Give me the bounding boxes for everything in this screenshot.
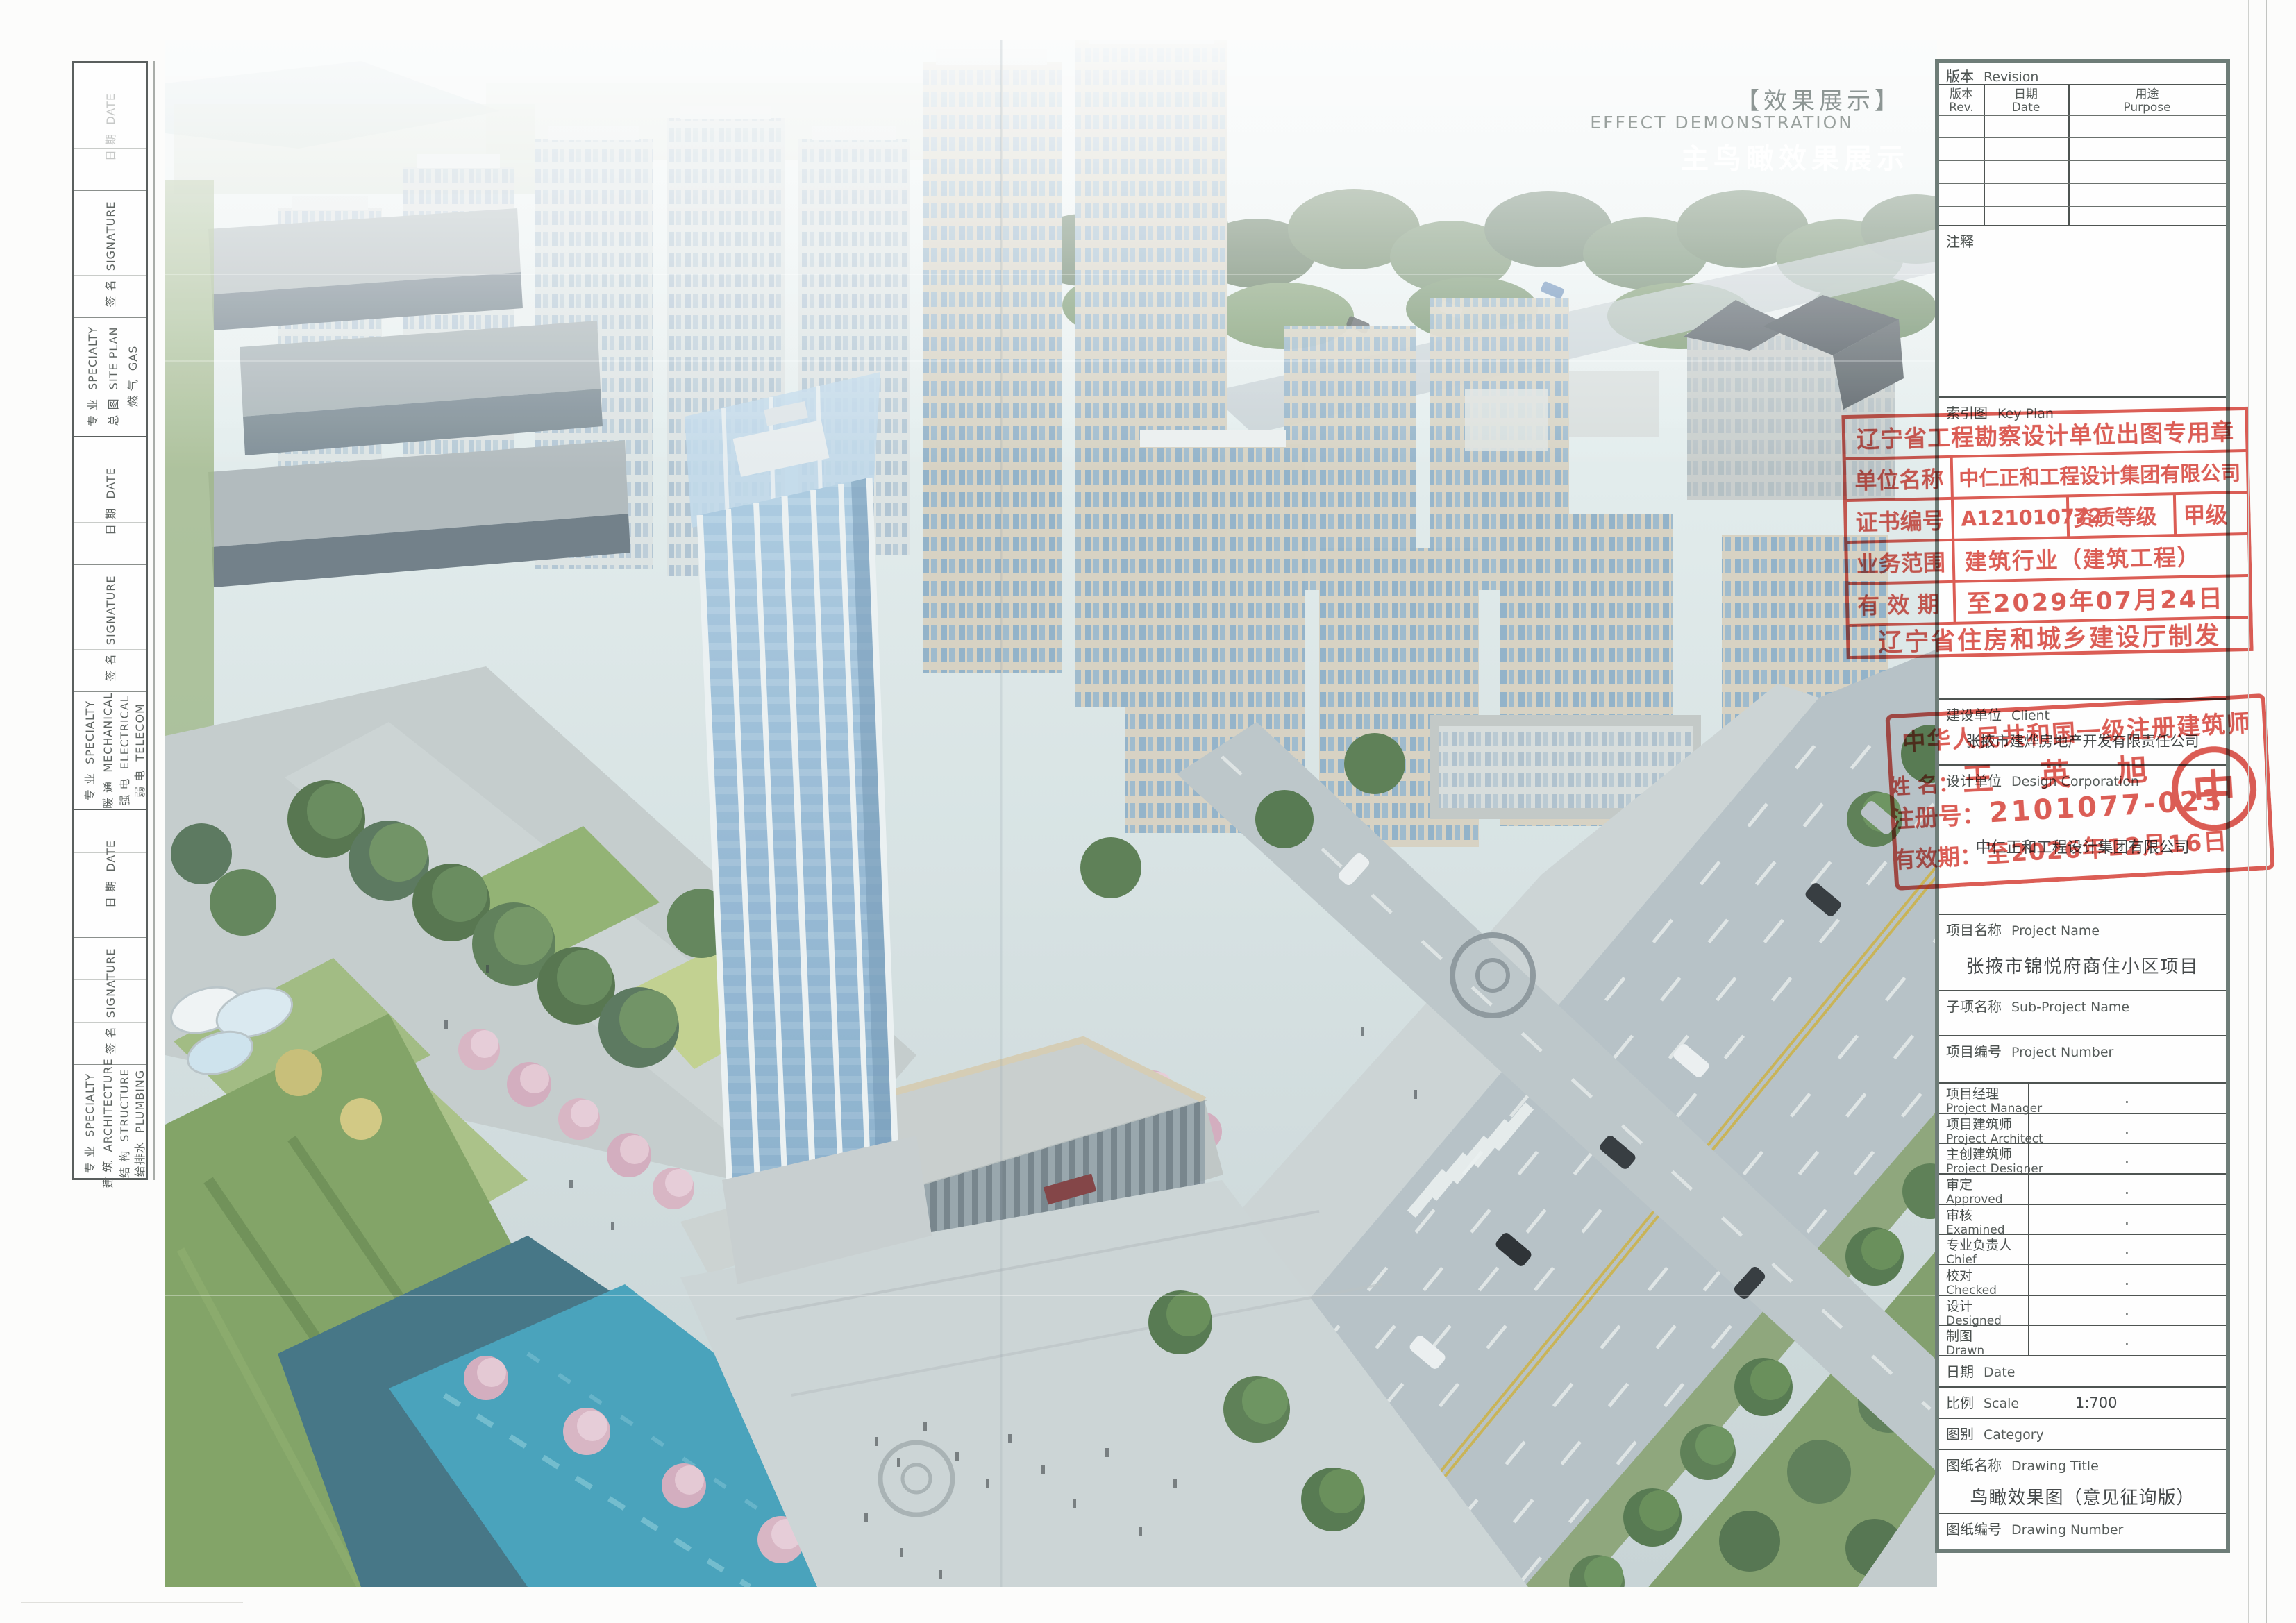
- drawing-sheet: 【效果展示】 EFFECT DEMONSTRATION 主鸟瞰效果展示 日 期 …: [0, 0, 2296, 1623]
- scan-shadow-line: [21, 1602, 243, 1603]
- personnel-row: 校对Checked .: [1939, 1264, 2226, 1295]
- signoff-strip-edge-line: [153, 61, 155, 1180]
- personnel-row: 审定Approved .: [1939, 1173, 2226, 1204]
- notes-area: 注释: [1939, 225, 2226, 396]
- signoff-group-2: 日 期 DATE 签 名 SIGNATURE 专 业 SPECIALTY 暖 通…: [74, 436, 146, 809]
- architect-valid-date: 至2026年12月16日: [1985, 827, 2229, 868]
- registration-seal-icon: 中: [2170, 744, 2259, 834]
- personnel-row: 项目经理Project Manager .: [1939, 1082, 2226, 1113]
- personnel-row: 项目建筑师Project Architect .: [1939, 1113, 2226, 1143]
- drawing-title-row: 图纸名称Drawing Title 鸟瞰效果图（意见征询版）: [1939, 1449, 2226, 1513]
- project-name-row: 项目名称Project Name 张掖市锦悦府商住小区项目: [1939, 914, 2226, 990]
- project-number-row: 项目编号Project Number: [1939, 1035, 2226, 1082]
- signoff-group-1: 日 期 DATE 签 名 SIGNATURE 专 业 SPECIALTY 总 图…: [74, 63, 146, 436]
- scale-value: 1:700: [2075, 1395, 2118, 1411]
- effect-caption-en: EFFECT DEMONSTRATION: [1590, 112, 1854, 133]
- revision-table: 版本Rev. 日期Date 用途Purpose: [1939, 84, 2226, 225]
- subproject-row: 子项名称Sub-Project Name: [1939, 990, 2226, 1035]
- signoff-strip: 日 期 DATE 签 名 SIGNATURE 专 业 SPECIALTY 总 图…: [72, 61, 148, 1180]
- effect-caption-cn: 【效果展示】: [1625, 82, 1902, 116]
- registered-architect-stamp: 中华人民共和国一级注册建筑师 姓 名： 王 英 旭 注册号： 2101077-0…: [1885, 693, 2274, 891]
- personnel-row: 主创建筑师Project Designer .: [1939, 1143, 2226, 1173]
- drawing-title: 鸟瞰效果图（意见征询版）: [1939, 1483, 2226, 1509]
- revision-header: 版本Revision: [1939, 63, 2226, 84]
- personnel-row: 制图Drawn .: [1939, 1325, 2226, 1355]
- page-edge-line: [2248, 0, 2249, 1623]
- personnel-row: 设计Designed .: [1939, 1295, 2226, 1325]
- design-institute-stamp: 辽宁省工程勘察设计单位出图专用章 单位名称 中仁正和工程设计集团有限公司 证书编…: [1841, 407, 2253, 659]
- signoff-group-3: 日 期 DATE 签 名 SIGNATURE 专 业 SPECIALTY 建 筑…: [74, 809, 146, 1181]
- drawing-number-row: 图纸编号Drawing Number: [1939, 1513, 2226, 1549]
- effect-caption-white: 主鸟瞰效果展示: [1639, 136, 1909, 176]
- scale-row: 比例Scale 1:700: [1939, 1386, 2226, 1418]
- project-name: 张掖市锦悦府商住小区项目: [1939, 952, 2226, 978]
- date-row: 日期Date: [1939, 1355, 2226, 1386]
- stamp-title: 辽宁省工程勘察设计单位出图专用章: [1845, 413, 2246, 455]
- personnel-row: 专业负责人Chief .: [1939, 1234, 2226, 1264]
- personnel-row: 审核Examined .: [1939, 1204, 2226, 1234]
- page-edge-line: [2266, 0, 2267, 1623]
- category-row: 图别Category: [1939, 1418, 2226, 1449]
